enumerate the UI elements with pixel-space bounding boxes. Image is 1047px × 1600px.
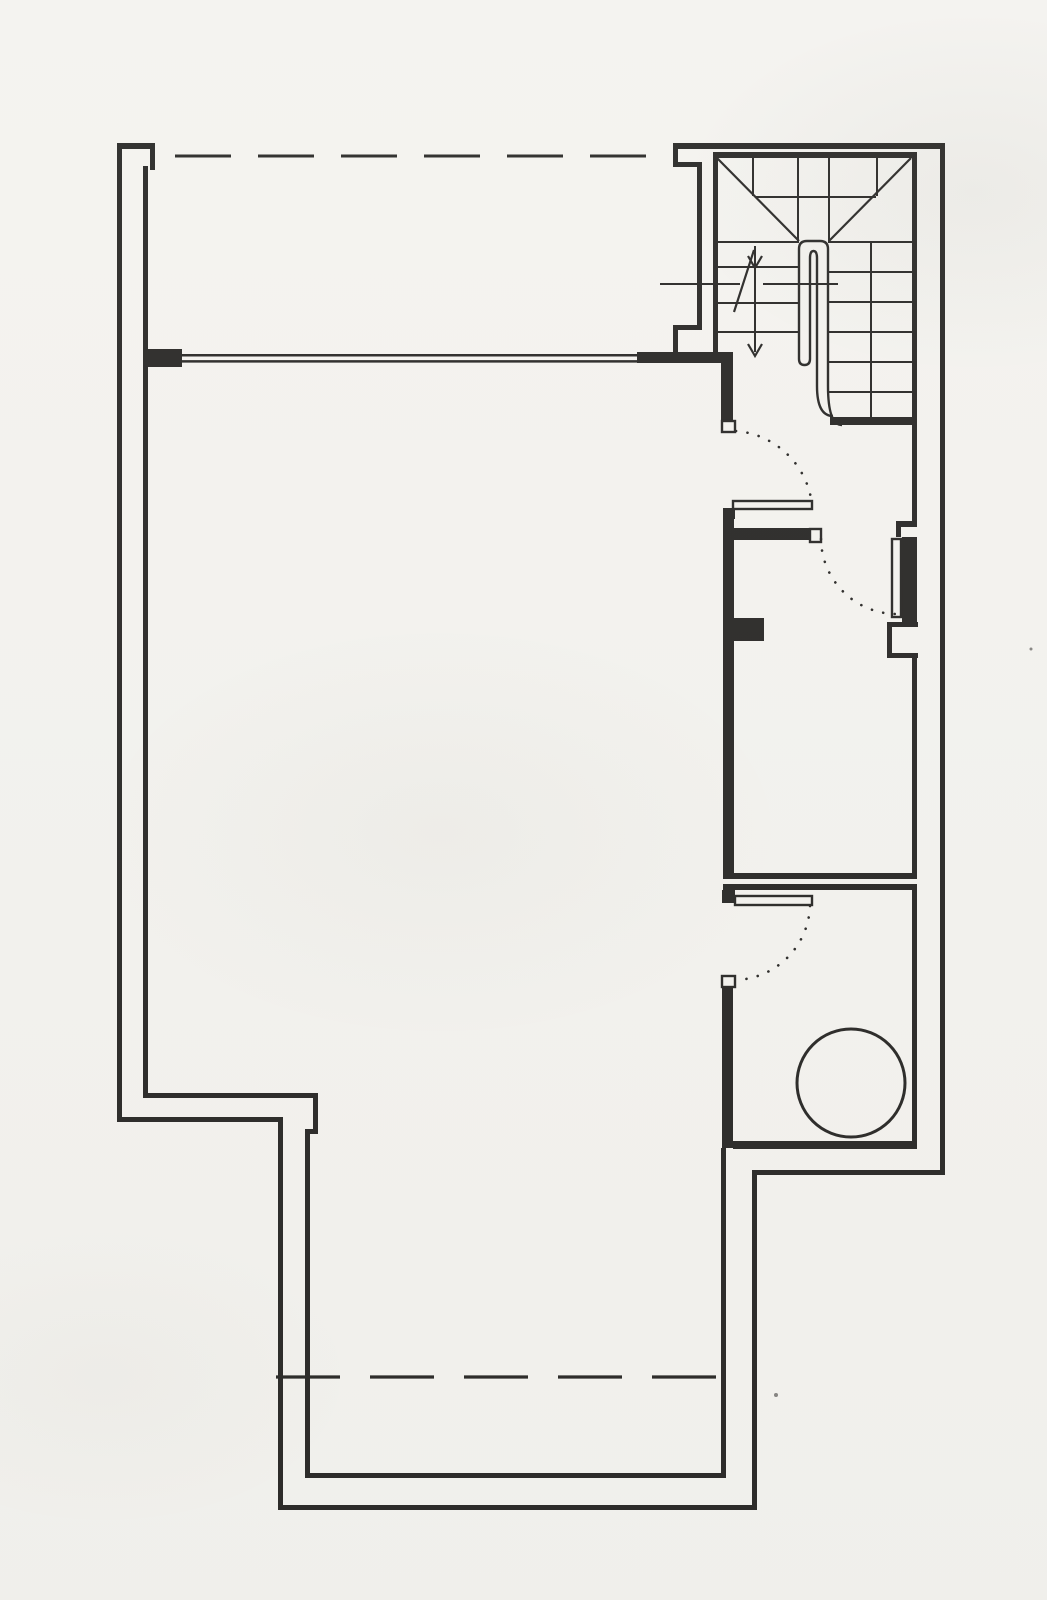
middle-room-bottom-wall-a	[723, 873, 917, 879]
stair-core-left-tip	[799, 359, 810, 365]
corridor-wall-pier	[733, 618, 764, 641]
annotation-layer	[175, 156, 1033, 1397]
round-fixture	[797, 1029, 905, 1137]
door-jamb-cap-3	[810, 529, 821, 542]
corridor-wall	[723, 512, 734, 874]
stair-left-wall-outer-b	[697, 162, 702, 330]
door-jamb-cap-2	[722, 976, 735, 987]
exterior-wall-left-inner-lower	[143, 367, 148, 1093]
middle-room-top-wall	[723, 528, 811, 540]
exterior-wall-right-inner-upper	[912, 152, 917, 522]
corridor-door-wall-above	[721, 361, 733, 422]
floor-plan-svg	[0, 0, 1047, 1600]
door-swing-arc-2	[736, 906, 810, 980]
right-door-jamb-jog-b	[896, 521, 901, 537]
stair-left-wall-outer-c	[673, 325, 678, 355]
exterior-wall-left-step-outer	[117, 1117, 283, 1122]
door-hinge-block-2	[722, 890, 735, 903]
exterior-wall-top-left-cap	[117, 143, 155, 149]
door-jamb-cap-1	[722, 421, 735, 432]
right-wall-pier-bottom	[887, 653, 918, 658]
lobby-wall-bar	[637, 352, 733, 363]
left-step-inner-vertical	[313, 1093, 318, 1134]
winder-diagonal-right	[829, 158, 911, 241]
window-pier-left	[143, 349, 182, 367]
door-leaf-2	[735, 896, 812, 905]
exterior-wall-top-outer	[673, 143, 945, 149]
door-swing-arc-1	[736, 431, 812, 505]
right-wall-pier-face	[887, 622, 892, 658]
door-leaf-3	[892, 539, 901, 617]
exterior-wall-cap-return	[150, 149, 155, 170]
understair-wall	[830, 417, 917, 425]
exterior-wall-left-inner-upper	[143, 166, 148, 349]
middle-room-bottom-wall-b	[723, 884, 917, 890]
scan-speck-1	[774, 1393, 778, 1397]
stair-core-inner	[810, 251, 817, 386]
stair-left-wall-inner	[713, 152, 718, 357]
right-door-frame	[902, 537, 917, 622]
door-swing-arc-3	[821, 539, 896, 614]
exterior-wall-right-inner-mid	[912, 658, 917, 873]
exterior-wall-lower-left-outer	[278, 1117, 283, 1510]
exterior-wall-lower-right-outer	[752, 1170, 757, 1510]
exterior-wall-right-inner-lower	[912, 890, 917, 1148]
scan-speck-2	[1030, 648, 1033, 651]
stair-top-inner-wall	[713, 152, 912, 158]
door-leaf-1	[733, 501, 812, 509]
stair-lines-layer	[182, 158, 912, 425]
exterior-wall-lower-right-inner	[721, 1148, 726, 1478]
exterior-wall-bottom-inner	[305, 1473, 726, 1478]
walls-layer	[117, 143, 945, 1510]
exterior-wall-lower-left-inner	[305, 1129, 310, 1478]
winder-diagonal-left	[717, 158, 799, 241]
paper-sheet	[0, 0, 1047, 1600]
utility-room-bottom-wall	[733, 1141, 917, 1149]
exterior-wall-step-outer	[752, 1170, 945, 1175]
exterior-wall-bottom-outer	[278, 1505, 757, 1510]
utility-wall-stub	[722, 986, 733, 1148]
exterior-wall-right-outer	[940, 143, 945, 1175]
exterior-wall-left-outer	[117, 143, 122, 1122]
left-step-inner-top	[143, 1093, 318, 1098]
